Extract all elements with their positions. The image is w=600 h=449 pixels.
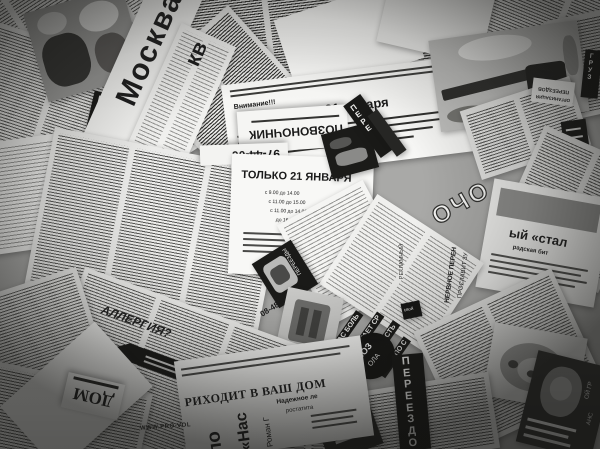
ochno-outline-text-text-0: ОЧО [428,176,495,229]
right-badge-2-detail [566,127,581,131]
pereezdov-vertical-banner-text-0: ПЕРЕЕЗДОВ [399,356,421,449]
dark-vehicle-photo-detail [334,146,369,168]
nervnoe-vertical-text-text-1: ПРОСЛАВИТ ЗУ [457,252,470,298]
dark-vehicle-photo-detail [329,135,353,150]
topleft-photo-detail [37,28,96,91]
dark-magazine-cover-text-1: АНС [586,412,595,426]
vash-dom-ad-detail [312,421,357,429]
vash-dom-ad-text-4: Роман Г [263,416,276,447]
vash-dom-ad-text-3: «Нас [234,411,256,449]
vash-dom-ad-text-0: РИХОДИТ В ВАШ ДОМ [184,377,327,409]
tolko-21-ad-text-2: с 11.00 до 15.00 [268,200,305,207]
website-text-text-0: WWW.PRO-VOL [140,422,191,432]
vash-dom-ad-text-2: ростатита [286,405,314,415]
reklamny-vertical-text-text-0: РЕКЛАМНЫЙ [400,244,406,279]
tolko-21-ad-text-1: с 9.00 до 14.00 [265,191,300,197]
dark-magazine-cover-text-0: ОЙ ГР [584,381,594,400]
stalingrad-article-text-1: радская бит [512,245,548,257]
newspaper-collage-photo: ПЕРЕЕЗМоскваквВнимание!!!с 18 по 21 янва… [0,0,600,449]
gun-photo-detail [457,31,534,65]
org-pereezdov-label: ОРГАНИЗАЦИЯПЕРЕЕЗДОВ [531,78,576,107]
topleft-photo-detail [75,0,122,36]
voz-circle-badge-text-1: ОЛА [367,352,382,368]
org-pereezdov-label-text-1: ПЕРЕЕЗДОВ [538,85,570,94]
gruz-badge-text-0: ГРУЗ [585,54,595,82]
dom-label-text-0: ДОМ [71,384,115,411]
